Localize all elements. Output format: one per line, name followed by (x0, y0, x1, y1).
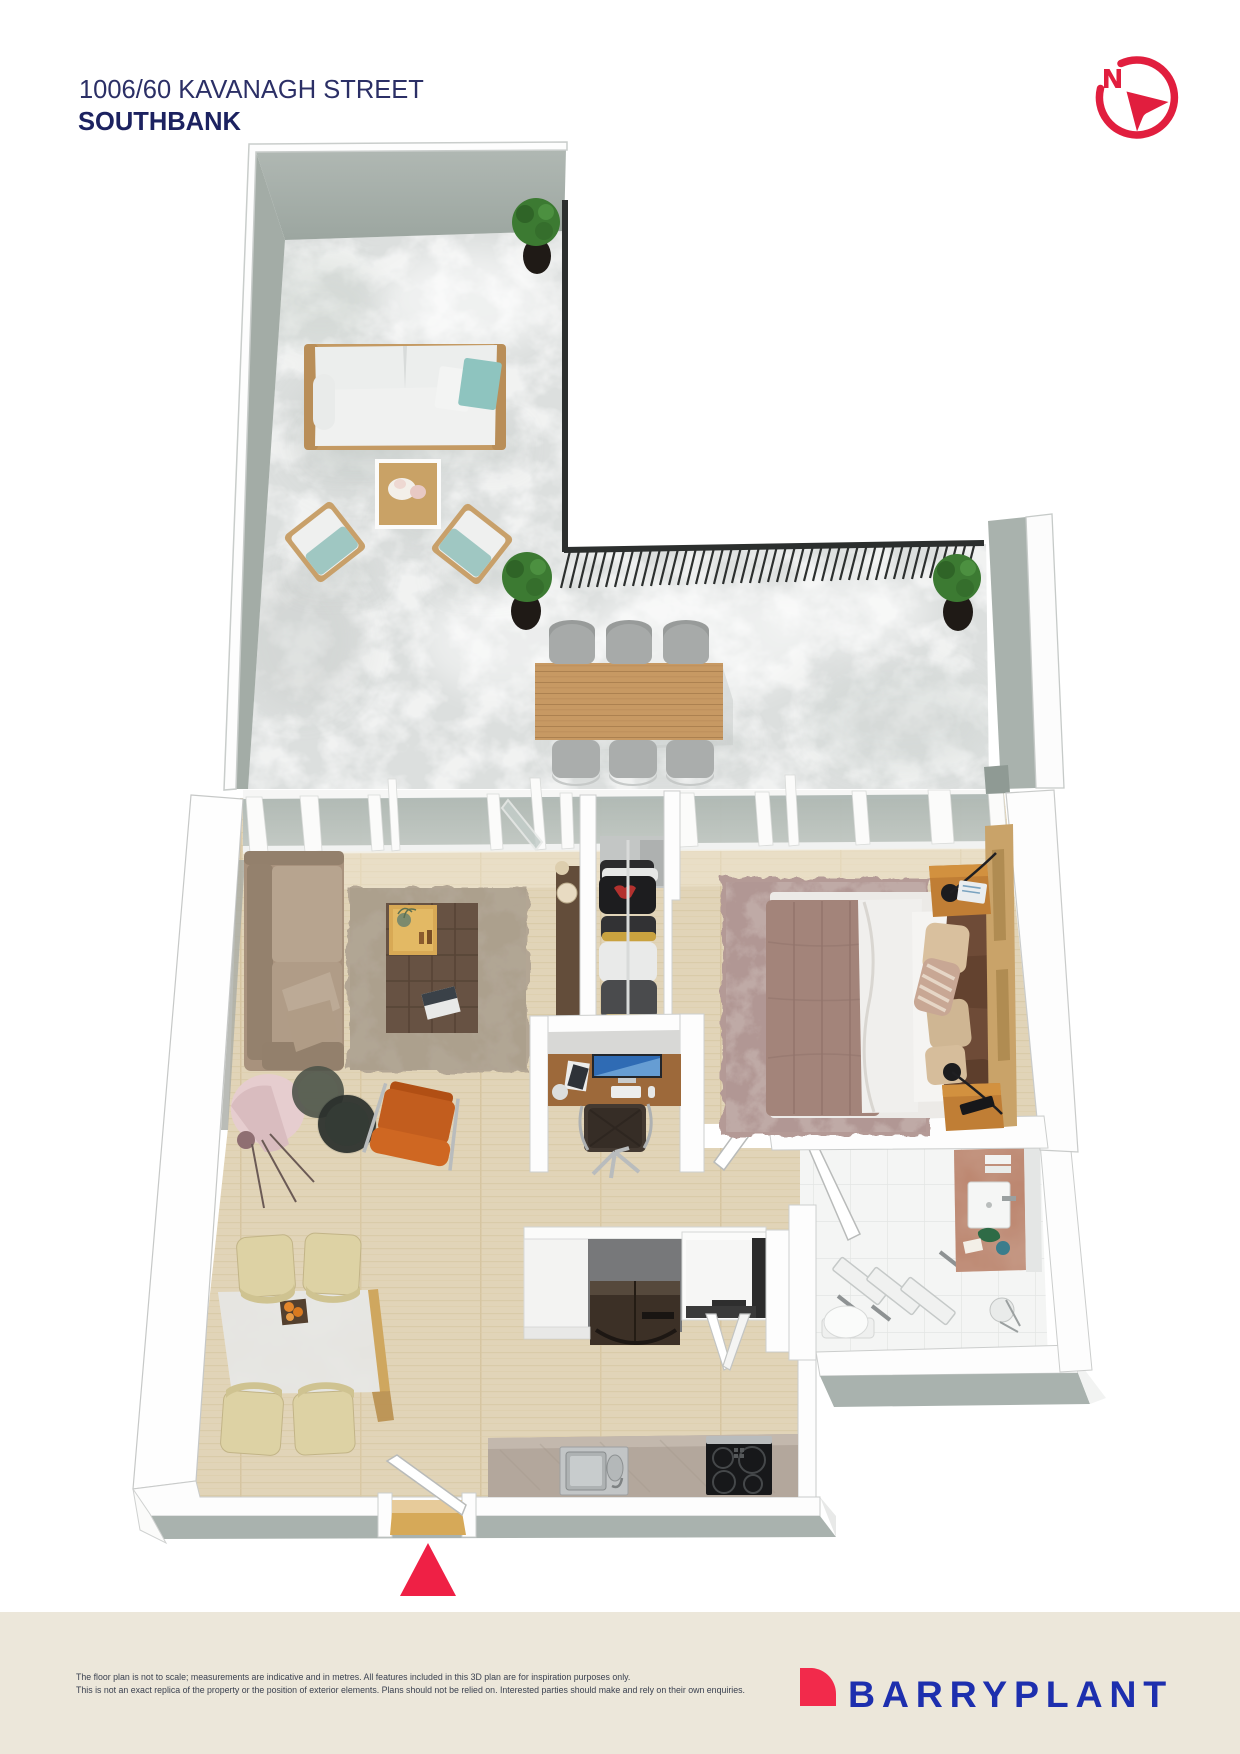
svg-text:This is not an exact replica o: This is not an exact replica of the prop… (76, 1685, 745, 1695)
svg-text:SOUTHBANK: SOUTHBANK (78, 108, 241, 136)
svg-text:The floor plan is not to scale: The floor plan is not to scale; measurem… (76, 1672, 630, 1682)
svg-text:BARRYPLANT: BARRYPLANT (848, 1673, 1173, 1715)
svg-text:1006/60 KAVANAGH STREET: 1006/60 KAVANAGH STREET (79, 76, 424, 104)
